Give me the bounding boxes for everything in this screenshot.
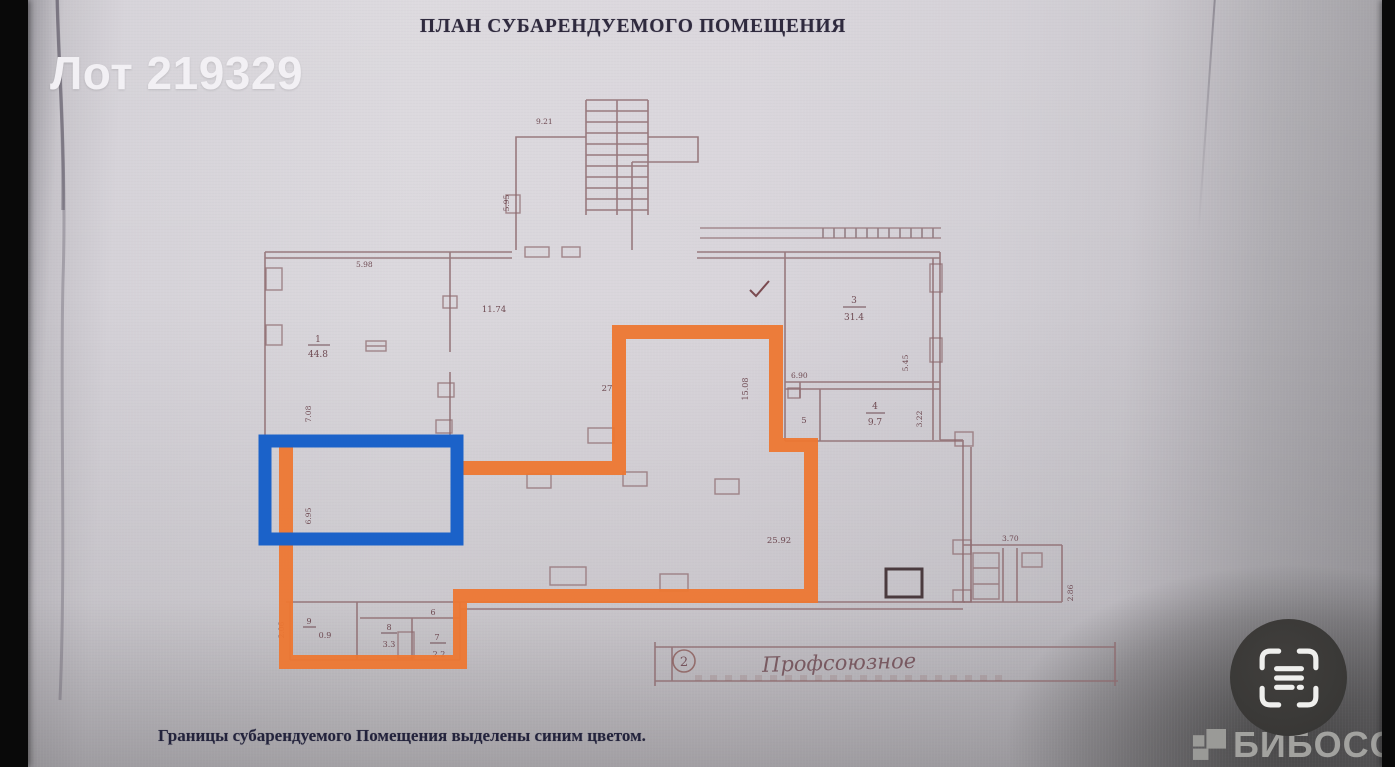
room-number: 9 xyxy=(306,617,311,626)
room-number: 7 xyxy=(434,633,439,642)
dim-label: 5.98 xyxy=(356,260,373,269)
room-number: 4 xyxy=(872,402,878,412)
details-layer xyxy=(266,195,1042,658)
dim-label: 6.95 xyxy=(304,507,313,524)
page-title: ПЛАН СУБАРЕНДУЕМОГО ПОМЕЩЕНИЯ xyxy=(253,16,1013,38)
dim-label: 15.08 xyxy=(741,378,750,401)
room-area: 31.4 xyxy=(844,313,864,323)
room-number: 8 xyxy=(386,623,391,632)
biboss-brand-text: БИБОСС xyxy=(1233,727,1395,763)
dim-label: 7.08 xyxy=(304,405,313,422)
letterbox-right xyxy=(1382,0,1395,767)
room-number: 3 xyxy=(851,296,857,306)
dim-label: 3.70 xyxy=(1002,534,1019,543)
room-area: 0.9 xyxy=(319,631,332,640)
hatch-strip xyxy=(700,228,941,238)
room-area: 44.8 xyxy=(308,350,328,360)
floor-plan: 9.21 5.95 5.98 1 44.8 7.08 11.74 27 15.0… xyxy=(0,0,1395,767)
room-number: 6 xyxy=(430,608,435,617)
scan-icon xyxy=(1258,647,1320,709)
letterbox-left xyxy=(0,0,28,767)
dim-label: 11.74 xyxy=(482,305,506,315)
pen-check-mark xyxy=(750,281,769,296)
dim-label: 3.22 xyxy=(915,410,924,427)
room-number: 5 xyxy=(801,416,806,426)
room-area: 9.7 xyxy=(868,418,883,428)
screenshot-root: 9.21 5.95 5.98 1 44.8 7.08 11.74 27 15.0… xyxy=(0,0,1395,767)
room-area: 3.3 xyxy=(383,640,396,649)
dim-label: 2.86 xyxy=(1066,584,1075,601)
plan-caption: Границы субарендуемого Помещения выделен… xyxy=(158,726,646,746)
street-number: 2 xyxy=(680,655,688,670)
dim-label: 5.95 xyxy=(502,194,511,211)
dim-label: 6.90 xyxy=(791,371,808,380)
dim-label: 9.21 xyxy=(536,117,553,126)
sublease-boundary-blue xyxy=(265,441,457,539)
photo-crease-dark xyxy=(57,0,63,210)
sublease-boundary-orange xyxy=(286,332,811,662)
lot-number-overlay: Лот 219329 xyxy=(50,46,303,100)
street-annotation: 2 Профсоюзное xyxy=(673,649,916,677)
dim-label: 27 xyxy=(602,384,613,394)
labels-layer: 9.21 5.95 5.98 1 44.8 7.08 11.74 27 15.0… xyxy=(277,117,1075,659)
biboss-logo-icon xyxy=(1193,729,1226,762)
room-area: 25.92 xyxy=(767,536,791,546)
equipment-box xyxy=(886,569,922,597)
street-name: Профсоюзное xyxy=(761,649,917,677)
scan-button[interactable] xyxy=(1230,619,1347,736)
dim-label: 5.45 xyxy=(901,354,910,371)
room-number: 1 xyxy=(315,335,321,345)
